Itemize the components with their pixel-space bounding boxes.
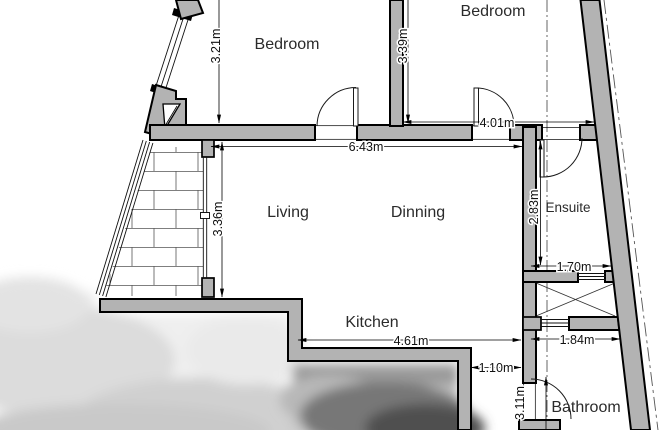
wall-bedroom2-south-left (357, 125, 472, 140)
floor-plan-page: 3.21m 3.39m 4.01m 6.43m 3.36m 2.83m 1.70… (0, 0, 661, 430)
room-label-dinning: Dinning (391, 204, 445, 221)
room-label-bathroom: Bathroom (551, 399, 620, 416)
floor-plan-canvas: 3.21m 3.39m 4.01m 6.43m 3.36m 2.83m 1.70… (0, 0, 661, 430)
room-label-kitchen: Kitchen (345, 314, 398, 331)
balcony-pier-bottom (202, 278, 214, 297)
wall-bedroom1-south (150, 125, 315, 140)
dim-label-ensuite-depth: 2.83m (527, 190, 541, 225)
wall-hall-west (523, 127, 536, 383)
dim-label-ensuite-width: 1.70m (557, 260, 592, 274)
dim-label-living-dinning-width: 6.43m (349, 140, 384, 154)
room-label-living: Living (267, 204, 309, 221)
wall-bathroom-south (519, 420, 560, 430)
dim-label-bedroom2-width: 3.39m (396, 29, 410, 64)
blurred-neighbor-area-bottom (280, 363, 485, 430)
dim-label-bathroom-depth: 3.11m (513, 386, 527, 420)
dim-label-kitchen-width: 4.61m (394, 334, 429, 348)
dim-label-hall-width: 1.84m (560, 333, 595, 347)
wall-shaft-south (569, 317, 619, 330)
balcony-pier-top (202, 140, 214, 157)
room-label-ensuite: Ensuite (545, 200, 590, 215)
room-label-bedroom-1: Bedroom (255, 36, 320, 53)
balcony-door-stile (201, 213, 210, 219)
dim-label-bedroom1-width: 3.21m (209, 29, 223, 64)
door-leaf-bedroom-2 (474, 88, 479, 126)
door-leaf-bedroom-1 (354, 88, 359, 126)
wall-shaft-south-pier (523, 317, 541, 330)
dim-label-passage-width: 1.10m (479, 361, 514, 375)
room-label-bedroom-2: Bedroom (461, 3, 526, 20)
dim-label-bedroom2-length: 4.01m (480, 116, 515, 130)
dim-label-living-depth: 3.36m (211, 202, 225, 237)
